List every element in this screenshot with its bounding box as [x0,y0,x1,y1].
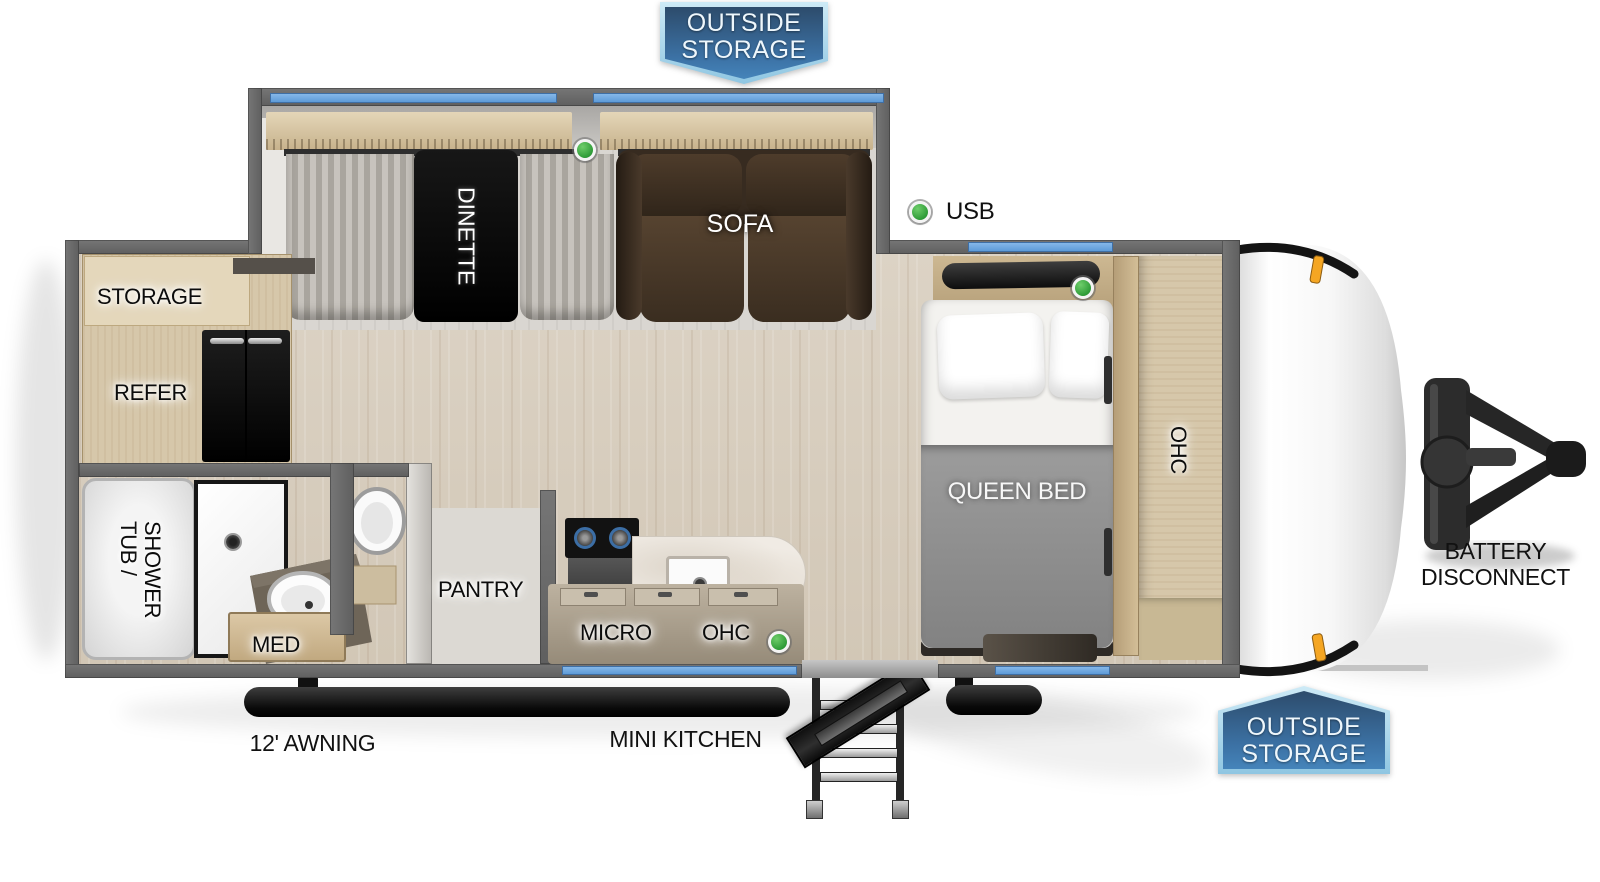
wall-bath-top [79,463,409,477]
badge-top-line2: STORAGE [681,36,806,64]
window-dinette [270,93,557,103]
led-indicator-dot-kitchen [768,631,790,653]
wardrobe-door [1113,256,1139,656]
cooktop [565,518,639,558]
badge-bottom-line2: STORAGE [1241,740,1366,768]
queen-bed-label: QUEEN BED [942,478,1092,506]
usb-label: USB [946,198,994,226]
ohc-bedroom-label: OHC [1165,426,1191,474]
bath-sink-drain-icon [305,601,313,609]
ohc-bedroom-label-wrap: OHC [1150,400,1206,500]
badge-bottom-line1: OUTSIDE [1247,713,1362,741]
wall-top-left [65,240,262,254]
bed-foot-bench [983,634,1097,662]
door-threshold [802,660,938,678]
pantry-label: PANTRY [438,577,523,603]
wall-right [1222,240,1240,678]
window-bedroom-bottom [995,666,1110,675]
led-indicator-dot-slideout [574,139,596,161]
wall-toilet-divider [330,463,354,635]
outside-storage-badge-top: OUTSIDE STORAGE [660,2,828,84]
wall-left [65,240,79,678]
burner-icon [574,527,596,549]
led-indicator-dot-headboard [1072,277,1094,299]
usb-indicator-dot [909,201,931,223]
micro-label: MICRO [580,620,652,646]
pillow [937,312,1046,400]
bath-wood-block [350,566,396,604]
cabinet-handle-icon [658,592,672,597]
bedroom-ohc-lower [1139,598,1223,660]
cabinet-handle-icon [734,592,748,597]
queen-bed [921,300,1113,648]
outside-storage-badge-bottom: OUTSIDE STORAGE [1218,686,1390,774]
ohc-kitchen-label: OHC [702,620,750,646]
window-sofa [593,93,884,103]
cabinet-handle-icon [584,592,598,597]
pantry-wall [406,463,432,664]
window-bedroom-top [968,242,1113,252]
med-label: MED [252,632,300,658]
badge-top-line1: OUTSIDE [687,9,802,37]
burner-icon [609,527,631,549]
slideout-wall-right [876,88,890,254]
pillow [1049,311,1110,399]
window-kitchen-bottom [562,666,797,675]
wardrobe-handle-icon [1104,356,1112,404]
floorplan-canvas: BATTERY DISCONNECT 12' AWNING MINI KITCH… [0,0,1600,882]
bed-blanket [921,445,1113,648]
wardrobe-handle-icon [1104,528,1112,576]
slideout-wall-left [248,88,262,254]
